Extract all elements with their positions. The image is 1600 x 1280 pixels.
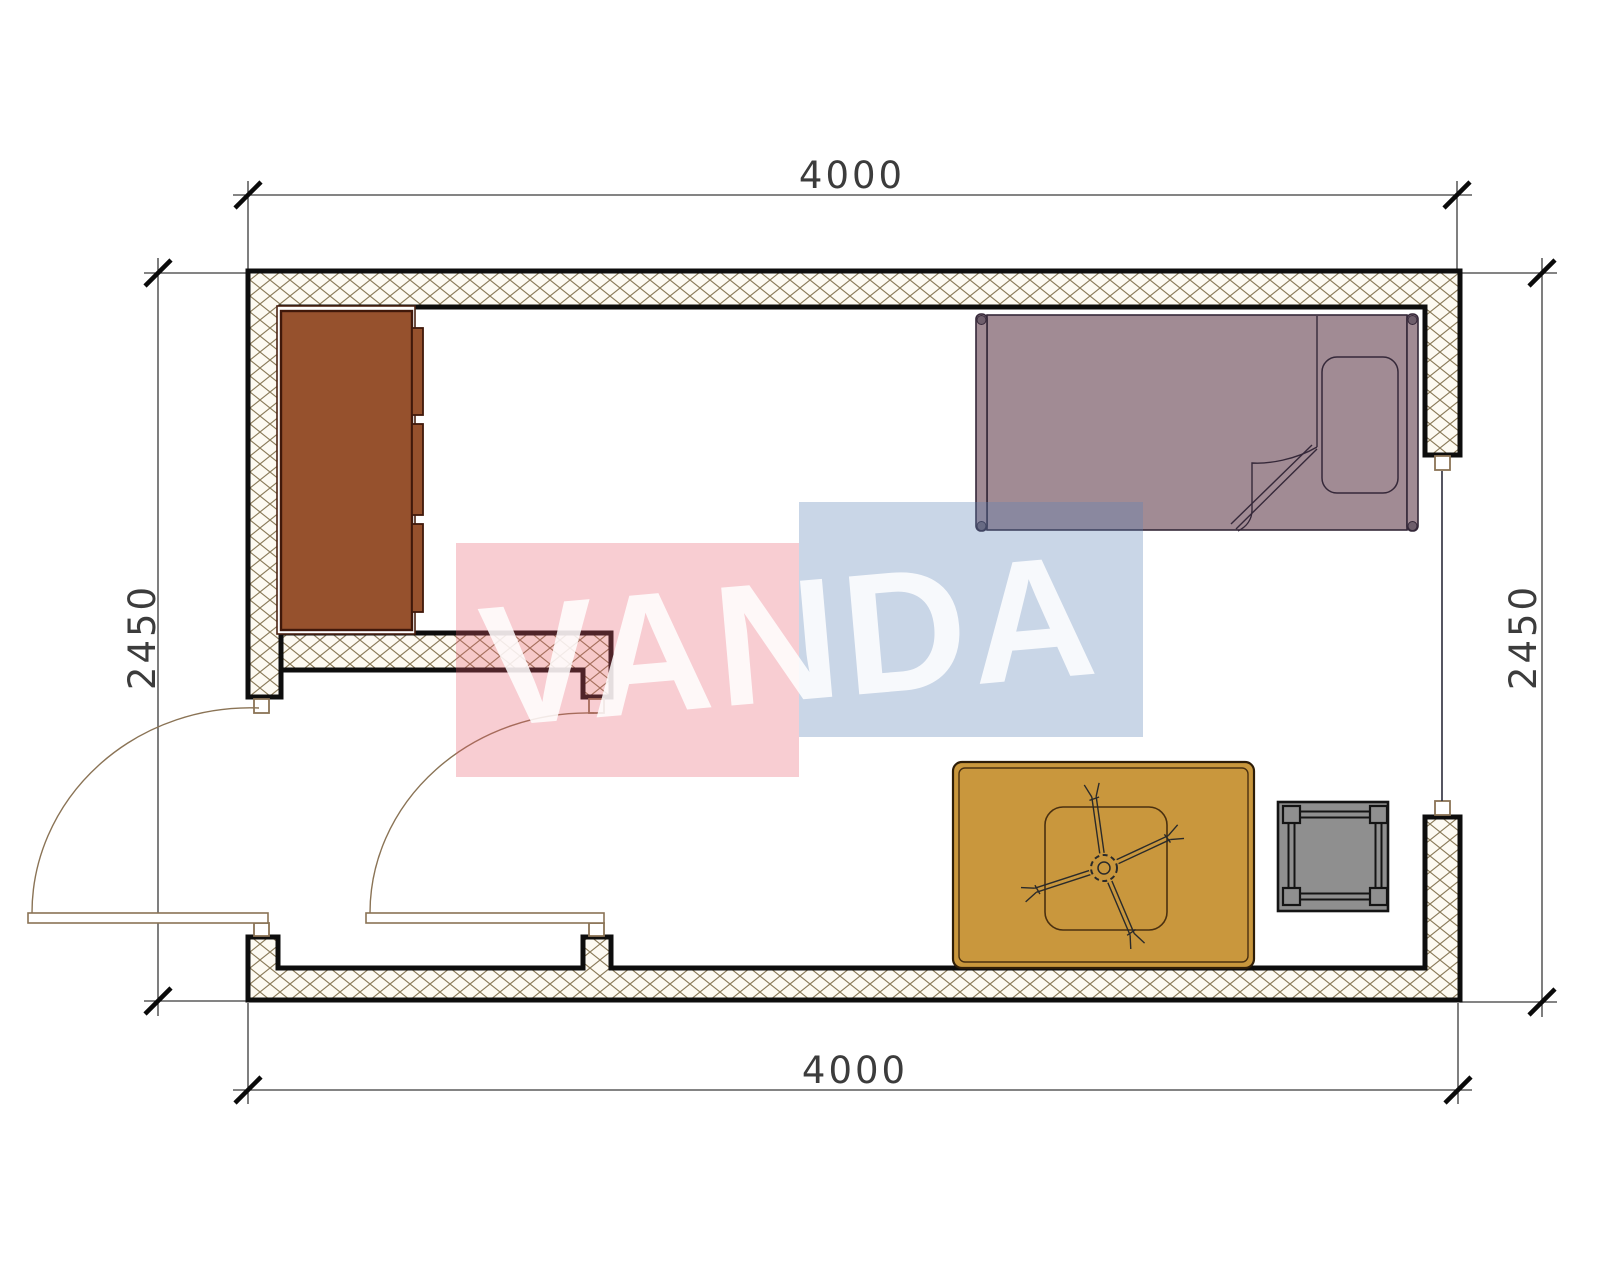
window-jamb xyxy=(1435,801,1450,815)
dimension-label-left: 2450 xyxy=(121,584,164,690)
bed-post xyxy=(1408,522,1417,531)
bed-pillow xyxy=(1322,357,1398,493)
bed-post xyxy=(1408,316,1417,325)
wardrobe-door-panel xyxy=(412,524,423,612)
dimension-label-top: 4000 xyxy=(799,154,905,197)
bed-footboard xyxy=(1407,314,1418,531)
floor-plan-drawing: 4000 4000 2450 2450 xyxy=(0,0,1600,1280)
wardrobe xyxy=(277,306,423,634)
wardrobe-door-panel xyxy=(412,424,423,515)
fan-hub-center xyxy=(1098,862,1110,874)
stool-leg xyxy=(1283,806,1300,823)
window-jamb xyxy=(1435,456,1450,470)
door-leaf-left xyxy=(28,913,268,923)
wardrobe-body xyxy=(281,311,412,630)
bed-post xyxy=(977,316,986,325)
door-jamb xyxy=(589,923,604,936)
dimension-label-right: 2450 xyxy=(1502,584,1545,690)
wardrobe-door-panel xyxy=(412,328,423,415)
door-arc-left xyxy=(32,708,259,913)
dimension-label-bottom: 4000 xyxy=(802,1049,908,1092)
stool-leg xyxy=(1283,888,1300,905)
door-jamb xyxy=(254,699,269,713)
floor-plan-canvas: 4000 4000 2450 2450 xyxy=(0,0,1600,1280)
bed xyxy=(976,314,1418,531)
door-jamb xyxy=(254,923,269,936)
stool-leg xyxy=(1370,888,1387,905)
table xyxy=(953,762,1254,968)
door-leaf-middle xyxy=(366,913,604,923)
stool xyxy=(1278,802,1388,911)
bed-headboard xyxy=(976,314,987,531)
stool-leg xyxy=(1370,806,1387,823)
